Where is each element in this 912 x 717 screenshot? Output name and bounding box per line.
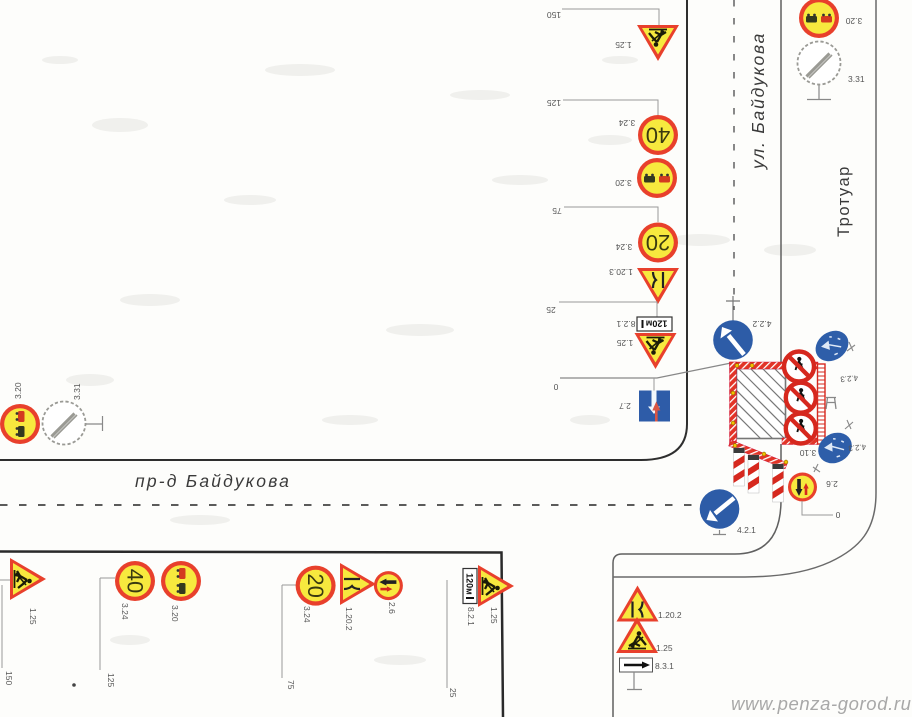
- svg-text:4.2.3: 4.2.3: [847, 442, 866, 453]
- svg-text:2.6: 2.6: [826, 479, 838, 489]
- svg-text:3.20: 3.20: [170, 605, 180, 622]
- svg-text:25: 25: [546, 305, 556, 315]
- svg-text:1.25: 1.25: [615, 40, 632, 50]
- svg-text:0: 0: [835, 510, 840, 520]
- svg-text:120м: 120м: [465, 573, 475, 595]
- svg-text:150: 150: [4, 671, 14, 685]
- svg-text:1.25: 1.25: [489, 607, 499, 624]
- svg-text:4.2.2: 4.2.2: [752, 319, 771, 329]
- svg-text:2.7: 2.7: [619, 401, 631, 411]
- svg-text:1.25: 1.25: [656, 643, 673, 653]
- svg-text:3.31: 3.31: [72, 383, 82, 400]
- svg-text:1.25: 1.25: [616, 338, 633, 348]
- svg-text:3.24: 3.24: [120, 603, 130, 620]
- svg-text:8.2.1: 8.2.1: [616, 319, 635, 329]
- svg-text:4.2.3: 4.2.3: [839, 373, 858, 384]
- svg-text:3.20: 3.20: [615, 178, 632, 188]
- svg-text:1.20.2: 1.20.2: [658, 610, 682, 620]
- svg-text:ул. Байдукова: ул. Байдукова: [748, 32, 768, 170]
- svg-text:120м: 120м: [645, 319, 667, 329]
- svg-text:3.10: 3.10: [799, 448, 816, 458]
- svg-text:75: 75: [286, 680, 296, 690]
- svg-text:Тротуар: Тротуар: [835, 165, 853, 237]
- svg-text:3.31: 3.31: [848, 74, 865, 84]
- svg-text:75: 75: [552, 206, 562, 216]
- svg-text:8.2.1: 8.2.1: [466, 607, 476, 626]
- svg-text:www.penza-gorod.ru: www.penza-gorod.ru: [731, 693, 911, 714]
- svg-text:150: 150: [547, 10, 561, 20]
- svg-text:1.25: 1.25: [28, 608, 38, 625]
- svg-text:3.24: 3.24: [615, 242, 632, 252]
- svg-text:3.20: 3.20: [13, 382, 23, 399]
- svg-text:3.24: 3.24: [618, 118, 635, 128]
- svg-text:2.6: 2.6: [387, 602, 397, 614]
- svg-text:0: 0: [553, 382, 558, 392]
- svg-text:3.20: 3.20: [845, 16, 862, 26]
- svg-text:1.20.2: 1.20.2: [344, 607, 354, 631]
- svg-text:1.20.3: 1.20.3: [609, 267, 633, 277]
- svg-text:пр-д Байдукова: пр-д Байдукова: [135, 471, 291, 491]
- svg-text:25: 25: [448, 688, 458, 698]
- svg-text:8.3.1: 8.3.1: [655, 661, 674, 671]
- svg-text:3.24: 3.24: [302, 606, 312, 623]
- svg-text:125: 125: [547, 98, 561, 108]
- svg-text:4.2.1: 4.2.1: [737, 525, 756, 535]
- svg-text:125: 125: [106, 673, 116, 687]
